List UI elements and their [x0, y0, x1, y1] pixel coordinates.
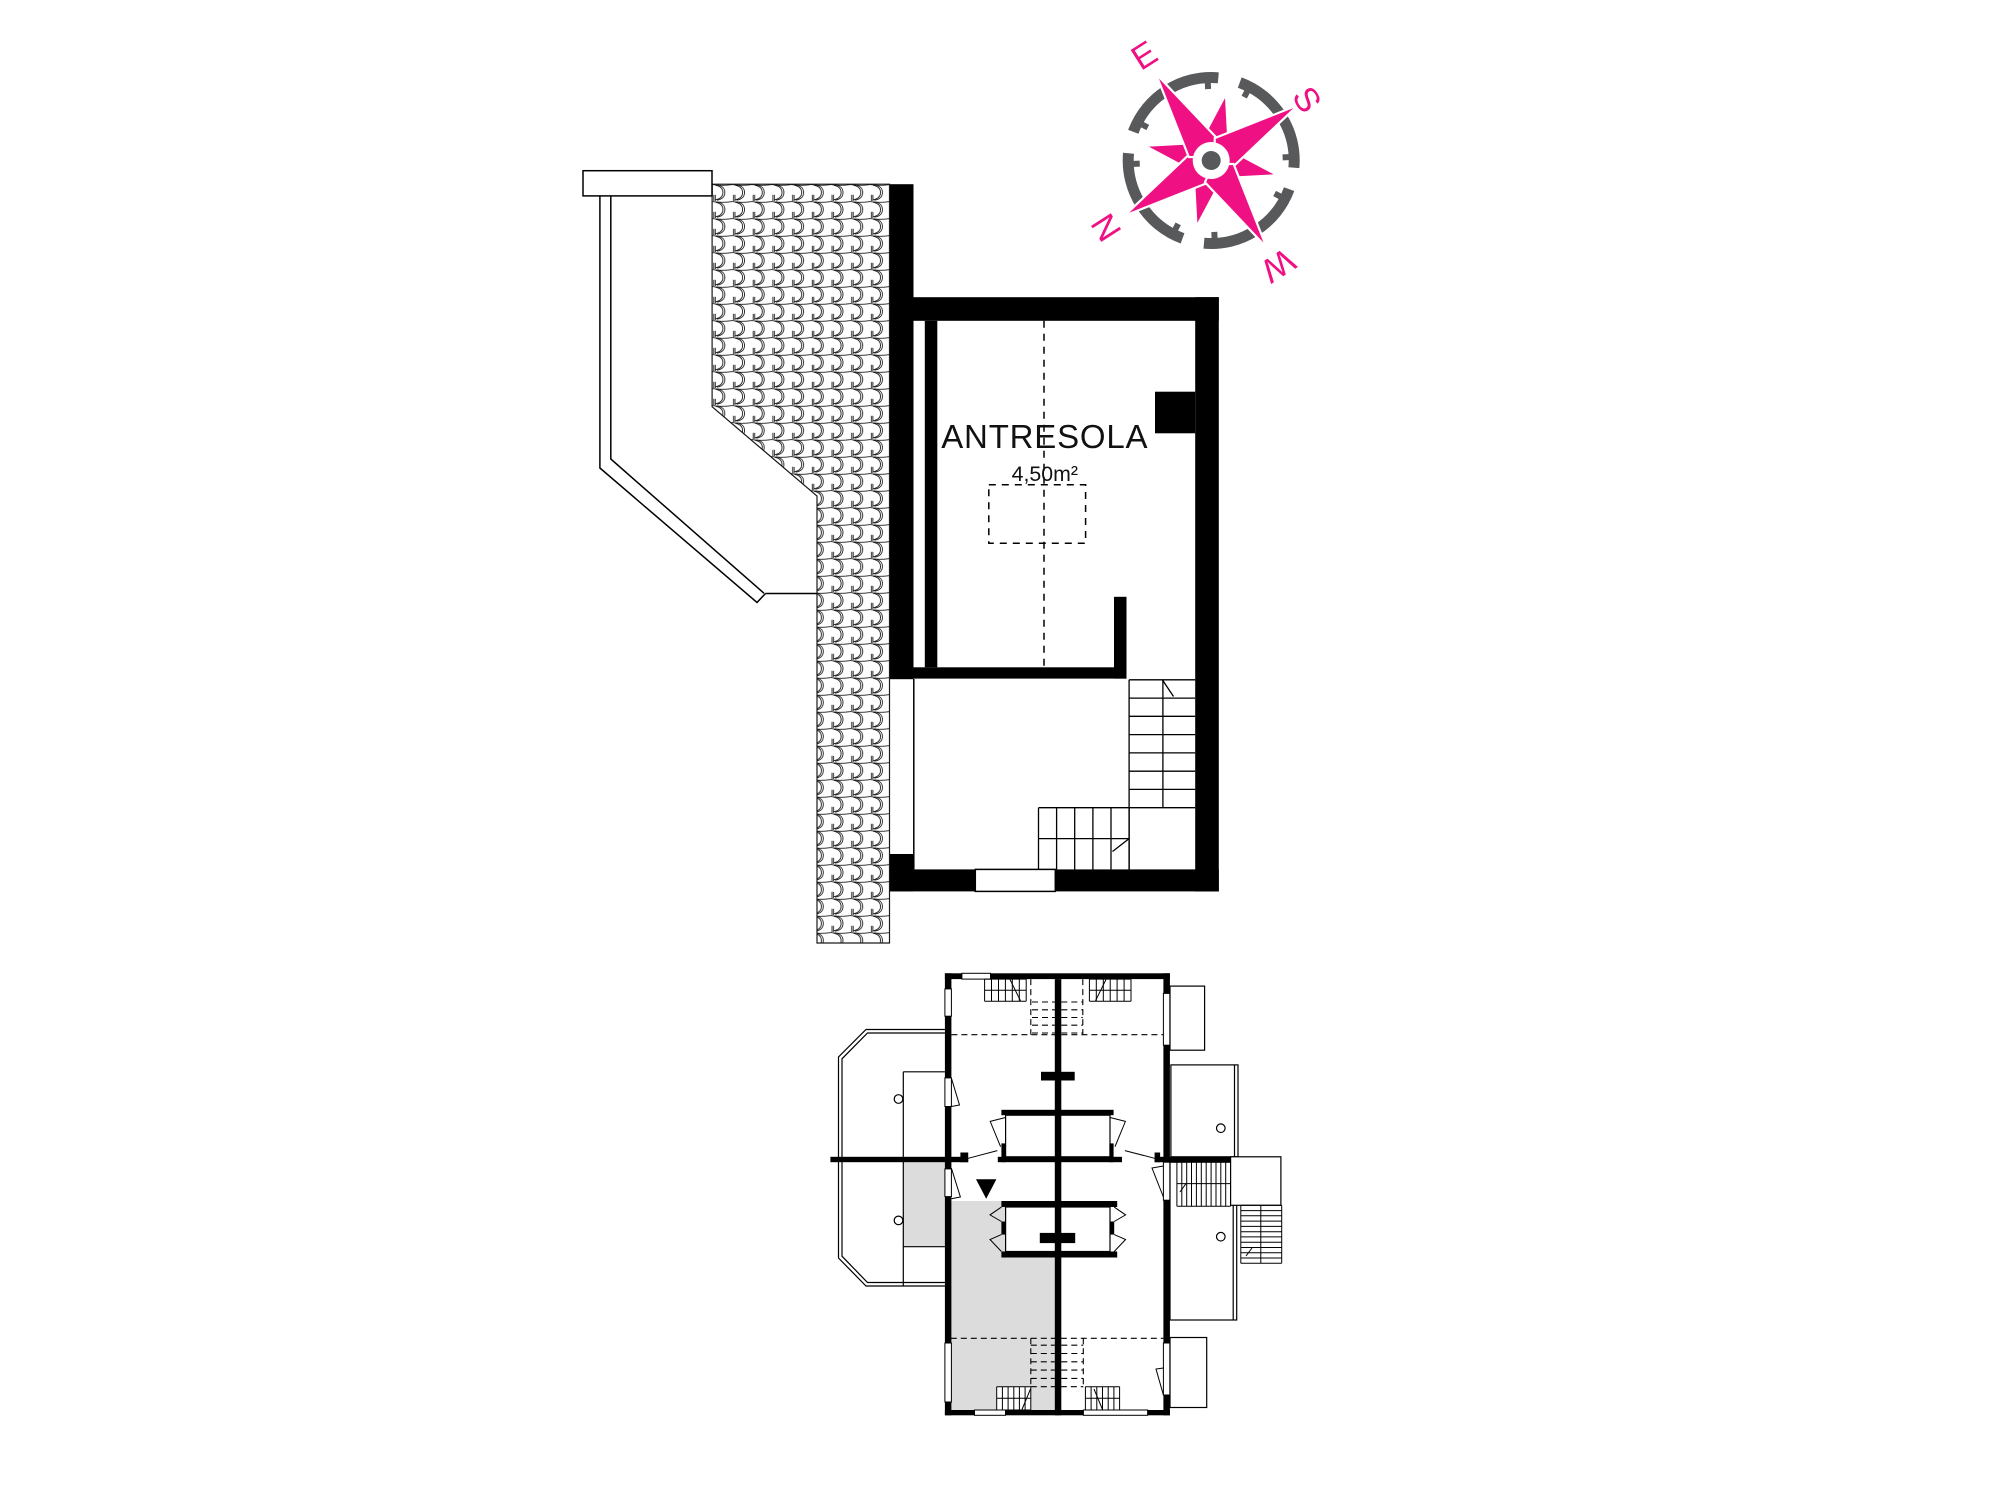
svg-text:4,50m²: 4,50m²: [1012, 462, 1078, 486]
svg-text:ANTRESOLA: ANTRESOLA: [941, 418, 1148, 455]
